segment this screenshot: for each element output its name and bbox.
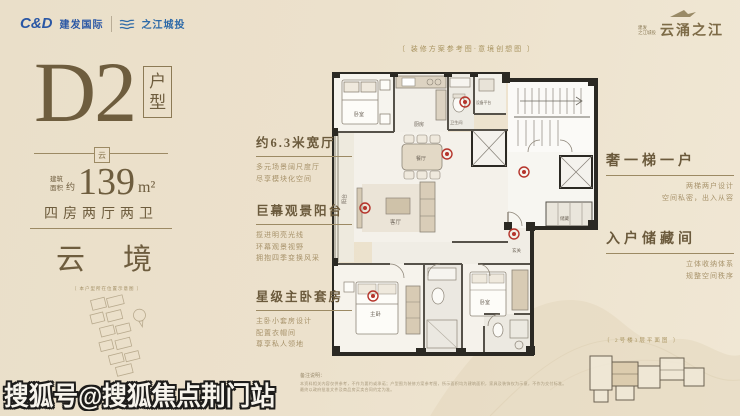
project-name: 云涌之江 xyxy=(660,20,724,40)
area-value: 139 xyxy=(78,166,135,198)
unit-code-block: D2 户 型 xyxy=(34,52,172,134)
partner-name-label: 之江城投 xyxy=(142,16,186,31)
feature-master-suite: 星级主卧套房 主卧小套房设计 配置衣帽间 尊享私人领地 xyxy=(256,286,352,351)
disclaimer: 备注说明： 本资料相关内容仅供参考，不作为要约或承诺；户型图为装修方案参考图，所… xyxy=(300,372,600,393)
room-label: 主卧 xyxy=(370,310,382,318)
feature-line: 配置衣帽间 xyxy=(256,328,352,339)
poster: C&D 建发国际 之江城投 建发 之江城投 云涌之江 D2 户 型 xyxy=(0,0,740,416)
wave-icon xyxy=(119,18,135,30)
disclaimer-line: 最终以政府批准文件及商品房买卖合同约定为准。 xyxy=(300,387,600,393)
logo-divider xyxy=(111,16,112,32)
unit-tag-char: 户 xyxy=(149,73,166,90)
feature-title: 奢一梯一户 xyxy=(606,150,734,176)
theme-char: 云 xyxy=(56,236,85,278)
feature-line: 规整空间秩序 xyxy=(606,271,734,282)
ornament-glyph: 云 xyxy=(98,150,106,161)
cd-logo: C&D xyxy=(20,15,53,32)
bed-bottom-right xyxy=(470,270,528,316)
room-label: 卧室 xyxy=(354,111,364,118)
feature-line: 主卧小套房设计 xyxy=(256,316,352,327)
feature-elevator: 奢一梯一户 两梯两户设计 空间私密，出入从容 xyxy=(606,150,734,204)
theme-name: 云 境 xyxy=(56,236,152,278)
cd-name-label: 建发国际 xyxy=(60,16,104,31)
room-label: 客厅 xyxy=(390,218,402,226)
feature-line: 环幕观景视野 xyxy=(256,242,352,253)
disclaimer-label: 备注说明： xyxy=(300,372,600,379)
feature-line: 立体收纳体系 xyxy=(606,259,734,270)
feature-storage: 入户储藏间 立体收纳体系 规整空间秩序 xyxy=(606,228,734,282)
plan-caption: 〔 装修方案参考图·意境创想图 〕 xyxy=(398,44,536,54)
floor-plan: 阳台 客厅 餐厅 厨房 卫生间 设备平台 主卧 卧室 卧室 玄关 储藏 xyxy=(332,72,600,362)
room-label: 厨房 xyxy=(414,121,424,128)
feature-title: 入户储藏间 xyxy=(606,228,734,254)
feature-title: 星级主卧套房 xyxy=(256,286,352,311)
feature-title: 巨幕观景阳台 xyxy=(256,200,352,225)
peak-icon xyxy=(668,8,698,18)
feature-line: 尊享私人领地 xyxy=(256,339,352,350)
site-sketch xyxy=(62,294,166,380)
key-plan xyxy=(586,346,712,408)
room-label: 设备平台 xyxy=(476,100,491,105)
room-corridor xyxy=(372,242,508,264)
room-label: 玄关 xyxy=(512,247,521,254)
theme-char: 境 xyxy=(123,236,152,278)
equipment-unit xyxy=(479,79,494,91)
feature-wide-hall: 约6.3米宽厅 多元场景阔尺度厅 尽享模块化空间 xyxy=(256,132,352,185)
unit-code: D2 xyxy=(34,52,135,134)
unit-type-tag: 户 型 xyxy=(143,66,172,118)
feature-line: 尽享模块化空间 xyxy=(256,174,352,185)
project-small-label: 建发 之江城投 xyxy=(638,25,656,36)
room-label: 卫生间 xyxy=(450,119,463,126)
sohu-watermark: 搜狐号@搜狐焦点荆门站 xyxy=(4,376,275,413)
feature-balcony: 巨幕观景阳台 揽进明亮光线 环幕观景视野 拥抱四季变换风采 xyxy=(256,200,352,265)
feature-line: 两梯两户设计 xyxy=(606,181,734,192)
feature-line: 拥抱四季变换风采 xyxy=(256,253,352,264)
room-label: 餐厅 xyxy=(416,155,426,162)
keyplan-caption: 〔 2号楼3层平面图 〕 xyxy=(604,336,680,344)
feature-line: 揽进明亮光线 xyxy=(256,230,352,241)
room-label: 卧室 xyxy=(480,299,490,306)
room-label: 储藏 xyxy=(560,215,569,222)
feature-line: 空间私密，出入从容 xyxy=(606,193,734,204)
entry-storage xyxy=(546,202,592,226)
header-logos: C&D 建发国际 之江城投 xyxy=(20,15,186,32)
area-unit: m² xyxy=(138,179,155,197)
area-block: 建筑面积 约 139 m² xyxy=(50,166,155,198)
area-prefix: 建筑面积 xyxy=(50,176,63,193)
feature-title: 约6.3米宽厅 xyxy=(256,132,352,157)
divider-bottom xyxy=(30,228,172,229)
location-caption: 〔 本户型所在位置示意图 〕 xyxy=(52,286,162,292)
area-approx: 约 xyxy=(66,180,75,193)
layout-text: 四房两厅两卫 xyxy=(34,203,168,223)
feature-line: 多元场景阔尺度厅 xyxy=(256,162,352,173)
project-lockup: 建发 之江城投 云涌之江 xyxy=(604,8,724,40)
unit-tag-char: 型 xyxy=(149,94,166,111)
room-foyer xyxy=(508,228,532,264)
